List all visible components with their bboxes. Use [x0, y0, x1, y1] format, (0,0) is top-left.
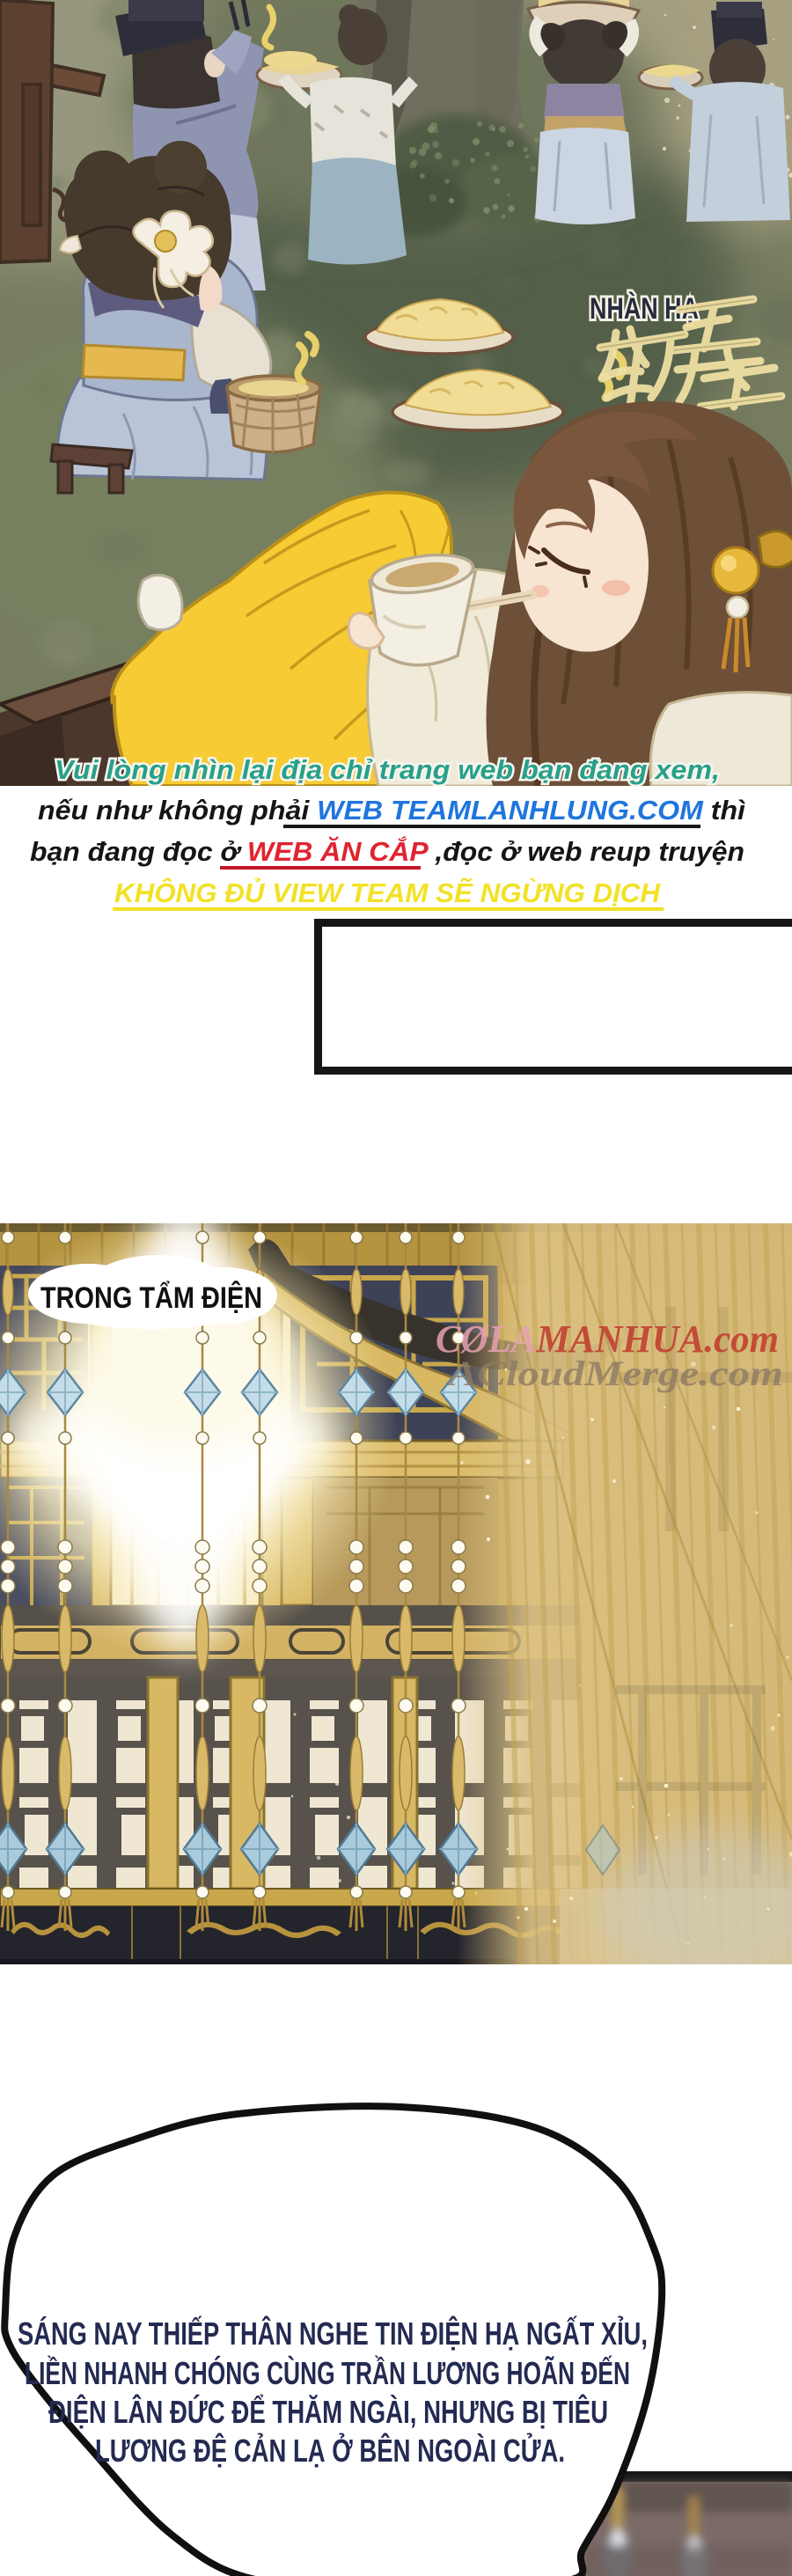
svg-text:nếu như không phải WEB TEAMLAN: nếu như không phải WEB TEAMLANHLUNG.COM …: [38, 795, 745, 826]
svg-text:ACloudMerge.com: ACloudMerge.com: [445, 1354, 783, 1393]
svg-text:KHÔNG ĐỦ VIEW TEAM SẼ NGỪNG DỊ: KHÔNG ĐỦ VIEW TEAM SẼ NGỪNG DỊCH: [114, 877, 661, 908]
svg-text:ĐIỆN LÂN ĐỨC ĐỂ THĂM NGÀI, NHƯ: ĐIỆN LÂN ĐỨC ĐỂ THĂM NGÀI, NHƯNG BỊ TIÊU: [48, 2393, 608, 2430]
svg-text:LIỀN NHANH CHÓNG CÙNG TRẦN LƯƠ: LIỀN NHANH CHÓNG CÙNG TRẦN LƯƠNG HOÃN ĐẾ…: [25, 2354, 630, 2391]
svg-text:LƯƠNG ĐỆ CẢN LẠ Ở BÊN NGOÀI CỬ: LƯƠNG ĐỆ CẢN LẠ Ở BÊN NGOÀI CỬA.: [95, 2432, 565, 2469]
svg-text:Vui lòng nhìn lại địa chỉ tran: Vui lòng nhìn lại địa chỉ trang web bạn …: [55, 754, 720, 785]
svg-text:SÁNG NAY THIẾP THÂN NGHE TIN Đ: SÁNG NAY THIẾP THÂN NGHE TIN ĐIỆN HẠ NGẤ…: [18, 2315, 648, 2352]
svg-text:bạn đang đọc ở WEB ĂN CẮP ,đọc: bạn đang đọc ở WEB ĂN CẮP ,đọc ở web reu…: [30, 835, 744, 867]
svg-text:TRONG TẨM ĐIỆN: TRONG TẨM ĐIỆN: [40, 1281, 262, 1315]
